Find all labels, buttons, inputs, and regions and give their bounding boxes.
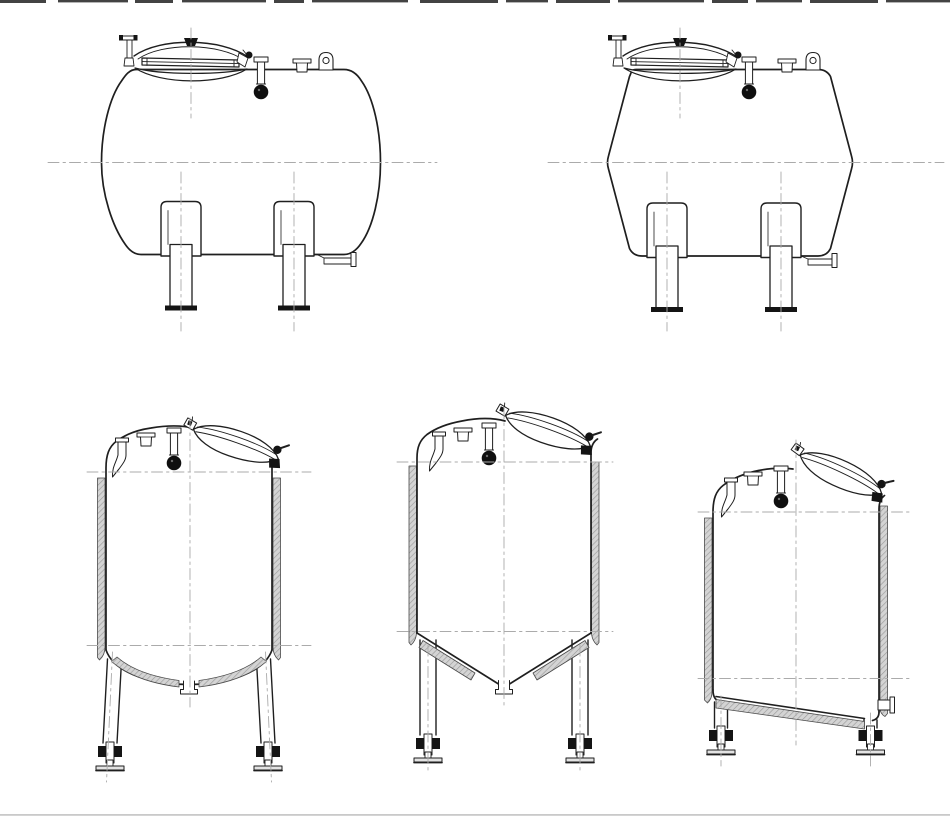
shell-outline bbox=[102, 70, 381, 255]
manway bbox=[608, 35, 742, 81]
tank-drawings-svg bbox=[0, 0, 950, 819]
lifting-lug bbox=[806, 53, 820, 71]
adjustable-foot-left bbox=[96, 742, 124, 771]
lifting-lug bbox=[319, 53, 333, 71]
scan-artifact-bottom bbox=[0, 814, 950, 816]
spray-ball-nozzle bbox=[482, 423, 497, 465]
leg-left bbox=[103, 659, 122, 743]
tank-horizontal-conical-ends bbox=[548, 28, 944, 331]
bottom-insulation-right bbox=[199, 657, 267, 687]
adjustable-foot-right bbox=[254, 742, 282, 771]
drawing-sheet bbox=[0, 0, 950, 819]
manway bbox=[785, 436, 894, 508]
stub-nozzle bbox=[744, 472, 762, 485]
stub-nozzle bbox=[454, 428, 472, 441]
insulation-jacket-right bbox=[880, 506, 888, 717]
spray-ball-nozzle bbox=[774, 466, 789, 508]
bottom-insulation-wedge bbox=[716, 700, 865, 730]
manway bbox=[491, 397, 601, 460]
insulation-jacket-left bbox=[705, 518, 713, 703]
manway bbox=[179, 411, 289, 473]
insulation-jacket-right bbox=[273, 478, 281, 660]
tank-vertical-conical-bottom bbox=[397, 397, 613, 773]
scan-artifact-top bbox=[0, 0, 950, 3]
gooseneck-vent bbox=[429, 432, 445, 471]
tank-vertical-dished-bottom bbox=[87, 411, 311, 782]
bottom-outlet bbox=[181, 681, 198, 694]
insulation-jacket-right bbox=[592, 462, 600, 645]
shell-left-wall bbox=[417, 419, 505, 633]
tank-horizontal-dished-ends bbox=[48, 28, 437, 331]
spray-ball-nozzle bbox=[167, 428, 182, 470]
tank-vertical-sloped-bottom bbox=[698, 436, 912, 766]
stub-nozzle bbox=[137, 433, 155, 446]
bottom-insulation-left bbox=[112, 657, 180, 687]
gooseneck-vent bbox=[112, 438, 128, 477]
leg-right bbox=[257, 659, 276, 743]
insulation-jacket-left bbox=[98, 478, 106, 660]
insulation-jacket-left bbox=[409, 466, 417, 645]
